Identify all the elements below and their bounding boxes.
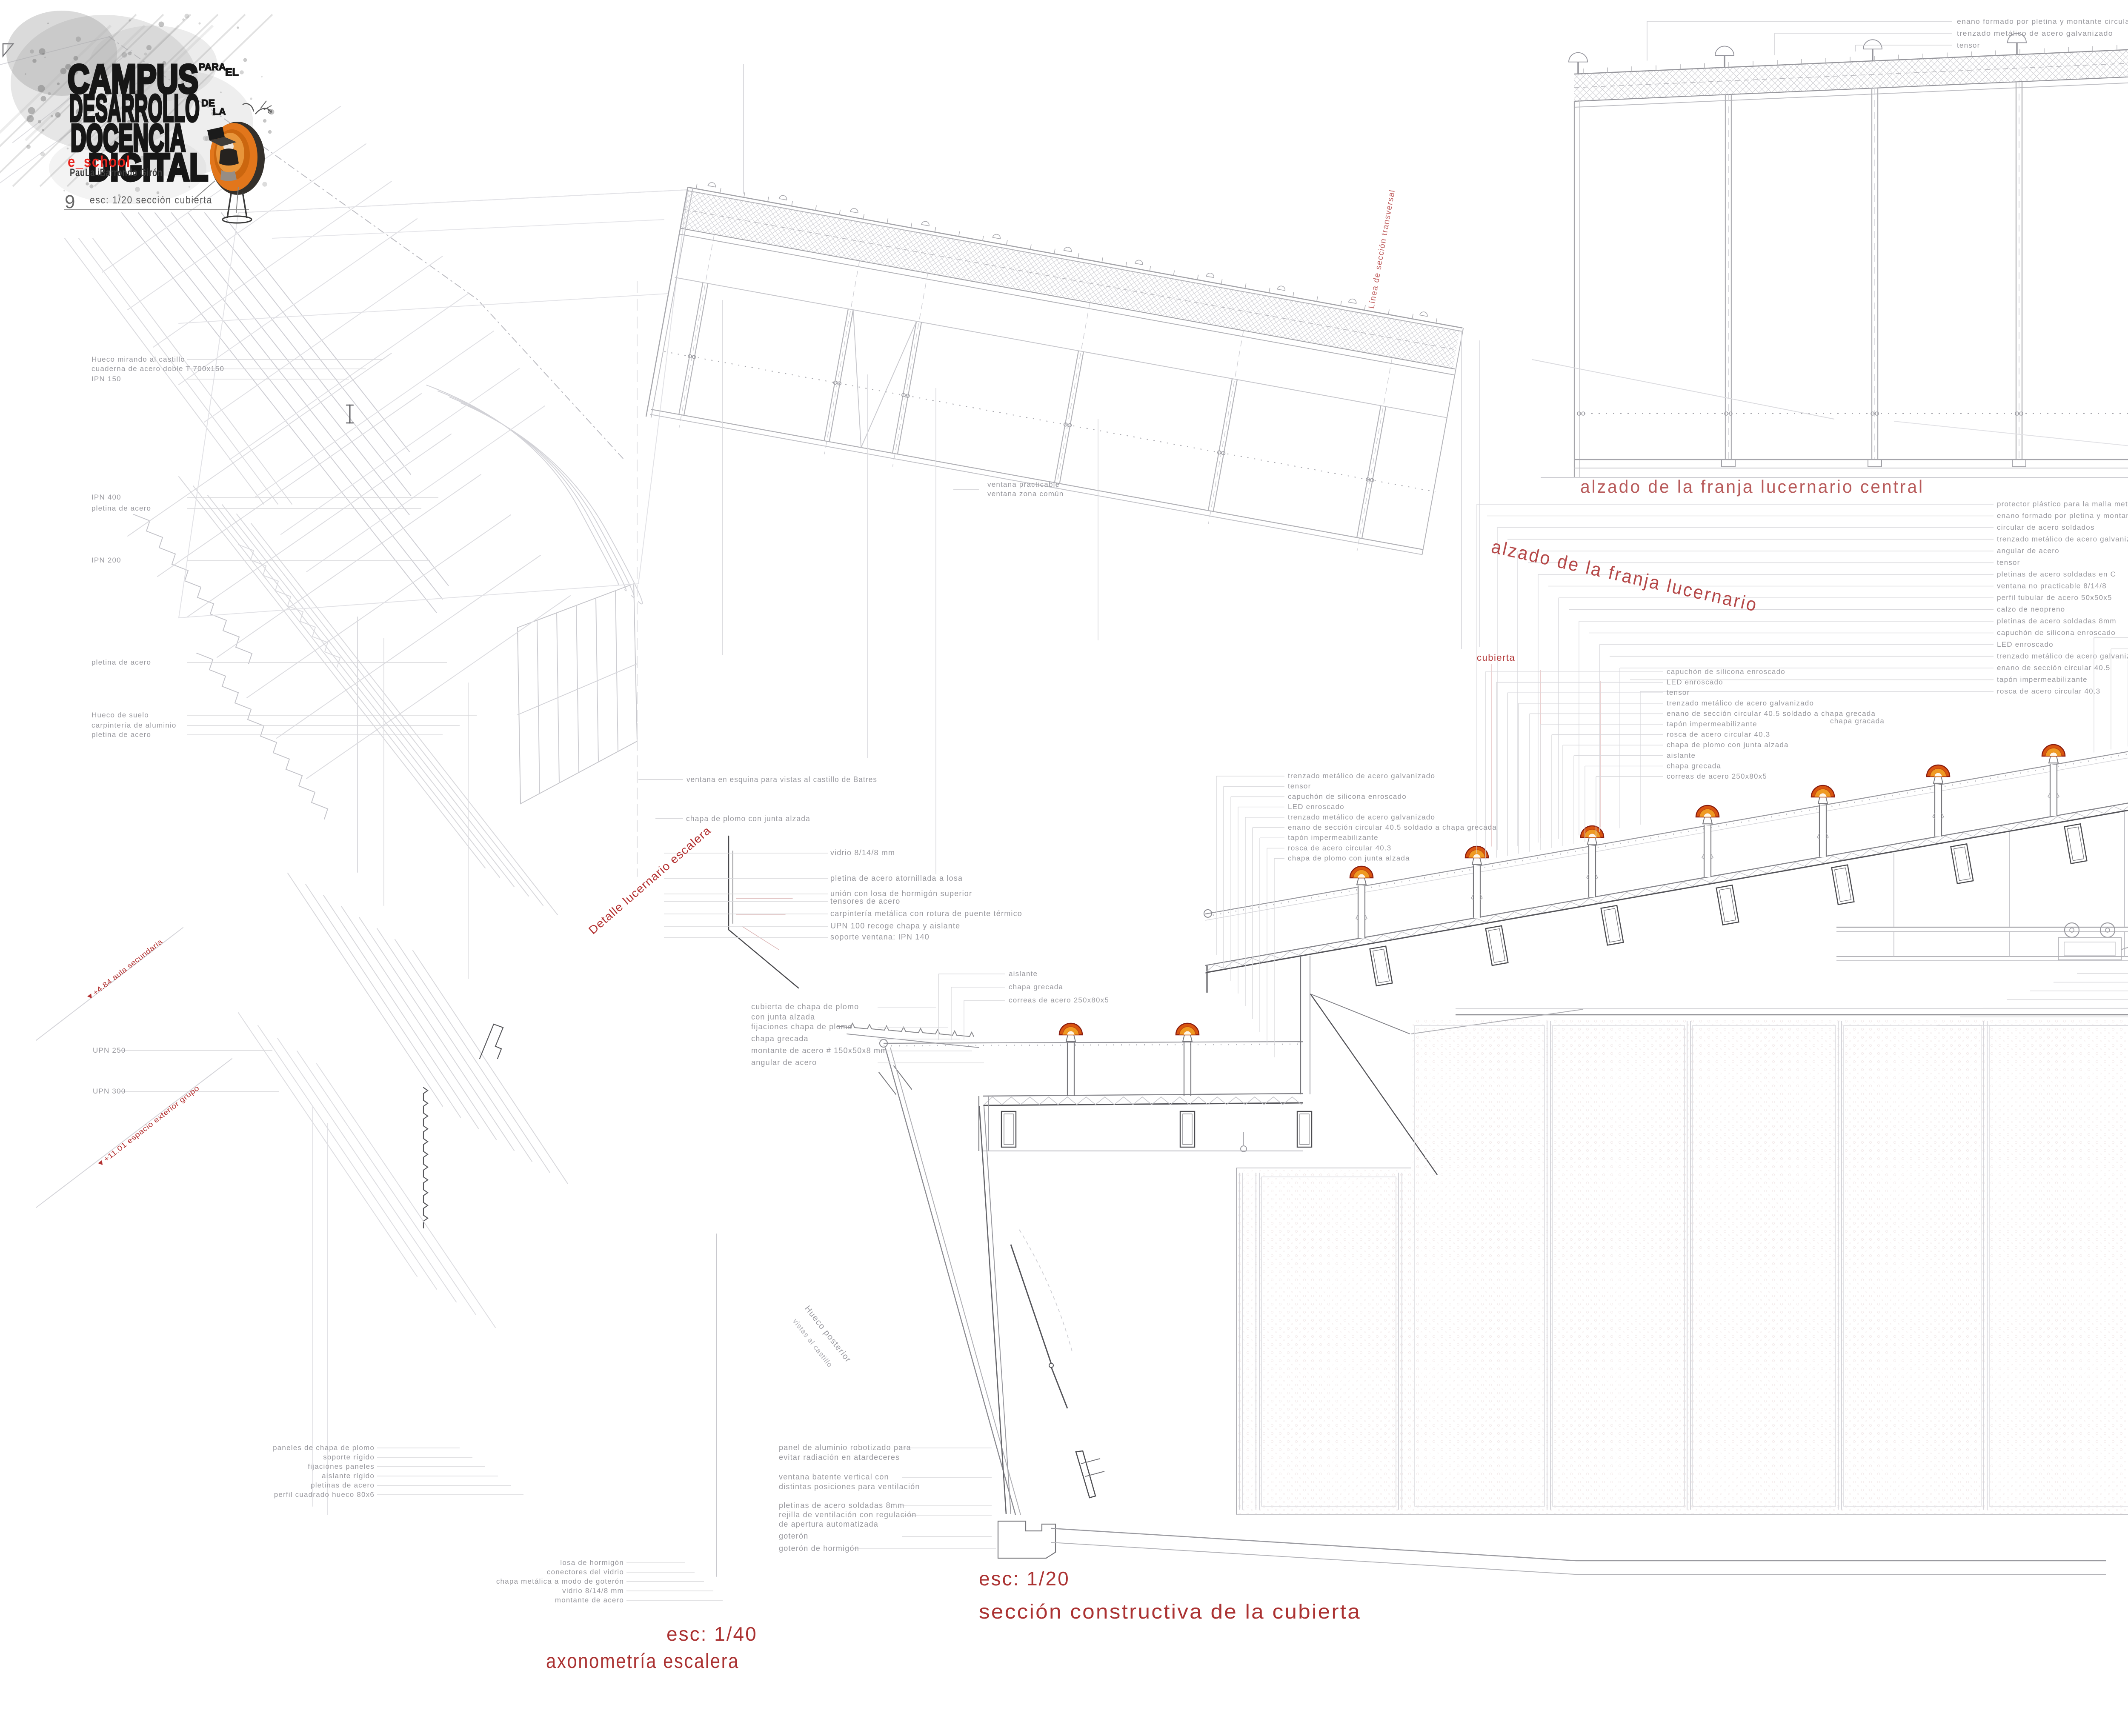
svg-text:chapa de plomo con junta alzad: chapa de plomo con junta alzada xyxy=(686,814,810,823)
svg-text:UPN 250: UPN 250 xyxy=(93,1046,126,1054)
svg-text:PauLa iBarrondo Girón: PauLa iBarrondo Girón xyxy=(70,167,163,179)
svg-text:tensor: tensor xyxy=(1667,688,1690,697)
svg-text:angular de acero: angular de acero xyxy=(1997,547,2059,555)
svg-text:UPN 300: UPN 300 xyxy=(93,1087,126,1095)
svg-text:paneles de chapa de plomo: paneles de chapa de plomo xyxy=(273,1444,375,1452)
svg-text:fijaciones chapa de plomo: fijaciones chapa de plomo xyxy=(751,1022,852,1031)
svg-text:soporte ventana: IPN 140: soporte ventana: IPN 140 xyxy=(830,933,930,941)
svg-text:rosca de acero circular 40.3: rosca de acero circular 40.3 xyxy=(1288,844,1391,852)
svg-text:IPN 200: IPN 200 xyxy=(92,556,121,564)
svg-text:pletina de acero atornillada a: pletina de acero atornillada a losa xyxy=(830,874,963,882)
svg-text:circular de acero soldados: circular de acero soldados xyxy=(1997,523,2095,531)
svg-text:rosca de acero circular 40.3: rosca de acero circular 40.3 xyxy=(1667,731,1770,739)
svg-text:correas de acero 250x80x5: correas de acero 250x80x5 xyxy=(1667,772,1767,780)
svg-text:capuchón de silicona enroscado: capuchón de silicona enroscado xyxy=(1667,668,1785,676)
svg-text:cubierta de chapa de plomo: cubierta de chapa de plomo xyxy=(751,1002,859,1011)
svg-text:esc: 1/20 sección cubierta: esc: 1/20 sección cubierta xyxy=(90,194,212,206)
svg-text:aislante rígido: aislante rígido xyxy=(322,1472,375,1480)
svg-text:chapa gracada: chapa gracada xyxy=(1830,717,1885,725)
svg-text:tensor: tensor xyxy=(1288,782,1311,790)
svg-text:chapa grecada: chapa grecada xyxy=(1667,762,1721,770)
svg-text:goterón: goterón xyxy=(779,1532,808,1540)
svg-text:IPN 150: IPN 150 xyxy=(92,375,121,383)
svg-text:enano formado por pletina y mo: enano formado por pletina y montante cir… xyxy=(1957,17,2128,26)
svg-text:capuchón de silicona enroscado: capuchón de silicona enroscado xyxy=(1288,792,1407,800)
svg-text:trenzado metálico de acero gal: trenzado metálico de acero galvanizado xyxy=(1288,813,1435,821)
svg-text:capuchón de silicona enroscado: capuchón de silicona enroscado xyxy=(1997,629,2116,637)
svg-text:rosca de acero circular 40.3: rosca de acero circular 40.3 xyxy=(1997,687,2100,695)
svg-text:ventana en esquina para vistas: ventana en esquina para vistas al castil… xyxy=(686,775,877,784)
svg-text:trenzado metálico de acero gal: trenzado metálico de acero galvanizado xyxy=(1997,652,2128,660)
svg-text:rejilla de ventilación con reg: rejilla de ventilación con regulación xyxy=(779,1510,917,1519)
svg-text:pletinas de acero soldadas en: pletinas de acero soldadas en C xyxy=(1997,570,2116,578)
svg-text:tapón impermeabilizante: tapón impermeabilizante xyxy=(1997,676,2088,684)
svg-text:tensores de acero: tensores de acero xyxy=(830,897,901,905)
svg-text:LED enroscado: LED enroscado xyxy=(1997,640,2054,648)
svg-text:con junta alzada: con junta alzada xyxy=(751,1013,815,1021)
svg-text:esc: 1/20: esc: 1/20 xyxy=(979,1568,1070,1590)
svg-text:ventana no practicable 8/14/8: ventana no practicable 8/14/8 xyxy=(1997,582,2107,590)
svg-text:axonometría escalera: axonometría escalera xyxy=(546,1650,739,1673)
svg-text:LA: LA xyxy=(213,106,226,117)
svg-text:vidrio 8/14/8 mm: vidrio 8/14/8 mm xyxy=(562,1587,624,1595)
svg-text:vidrio 8/14/8 mm: vidrio 8/14/8 mm xyxy=(830,848,895,857)
svg-text:perfil tubular de acero 50x50x: perfil tubular de acero 50x50x5 xyxy=(1997,594,2112,602)
svg-text:evitar radiación en atardecere: evitar radiación en atardeceres xyxy=(779,1453,900,1462)
svg-text:ventana batente vertical con: ventana batente vertical con xyxy=(779,1473,889,1481)
svg-text:trenzado metálico de acero gal: trenzado metálico de acero galvanizado xyxy=(1667,699,1814,707)
svg-text:tensor: tensor xyxy=(1997,559,2020,567)
svg-text:ventana practicable: ventana practicable xyxy=(987,480,1060,488)
svg-text:Hueco mirando al castillo: Hueco mirando al castillo xyxy=(92,355,185,363)
svg-text:pletinas de acero: pletinas de acero xyxy=(311,1481,375,1489)
svg-text:goterón de hormigón: goterón de hormigón xyxy=(779,1544,859,1553)
svg-text:trenzado metálico de acero gal: trenzado metálico de acero galvanizado xyxy=(1957,29,2113,37)
svg-text:pletina de acero: pletina de acero xyxy=(92,504,151,512)
svg-text:calzo de neopreno: calzo de neopreno xyxy=(1997,605,2065,614)
svg-text:tensor: tensor xyxy=(1957,41,1980,49)
svg-text:conectores del vidrio: conectores del vidrio xyxy=(547,1568,624,1576)
svg-text:chapa de plomo con junta alzad: chapa de plomo con junta alzada xyxy=(1288,854,1410,862)
svg-text:unión con losa de hormigón sup: unión con losa de hormigón superior xyxy=(830,889,972,898)
svg-text:montante de acero # 150x50x8: montante de acero # 150x50x8 mm xyxy=(751,1046,887,1055)
svg-text:esc: 1/40: esc: 1/40 xyxy=(666,1623,758,1645)
svg-text:soporte rígido: soporte rígido xyxy=(323,1453,375,1461)
svg-text:IPN 400: IPN 400 xyxy=(92,493,121,501)
svg-text:losa de hormigón: losa de hormigón xyxy=(560,1559,624,1567)
svg-text:ventana zona común: ventana zona común xyxy=(987,490,1064,498)
svg-text:enano de sección circular 40.5: enano de sección circular 40.5 xyxy=(1997,664,2111,672)
svg-text:angular de acero: angular de acero xyxy=(751,1058,817,1067)
svg-text:fijaciones paneles: fijaciones paneles xyxy=(308,1462,375,1470)
svg-text:pletina de acero: pletina de acero xyxy=(92,658,151,666)
svg-text:pletinas de acero soldadas 8mm: pletinas de acero soldadas 8mm xyxy=(779,1501,904,1510)
svg-text:montante de acero: montante de acero xyxy=(555,1596,624,1604)
svg-text:chapa grecada: chapa grecada xyxy=(751,1034,809,1043)
svg-text:perfil cuadrado hueco 80x6: perfil cuadrado hueco 80x6 xyxy=(274,1490,375,1499)
svg-text:aislante: aislante xyxy=(1667,751,1696,759)
svg-text:de apertura automatizada: de apertura automatizada xyxy=(779,1520,878,1528)
svg-text:trenzado metálico de acero gal: trenzado metálico de acero galvanizado xyxy=(1288,772,1435,780)
svg-text:aislante: aislante xyxy=(1009,970,1038,978)
svg-text:LED enroscado: LED enroscado xyxy=(1667,678,1723,686)
svg-text:LED enroscado: LED enroscado xyxy=(1288,803,1344,811)
svg-text:EL: EL xyxy=(225,66,239,78)
svg-text:panel de aluminio robotizado p: panel de aluminio robotizado para xyxy=(779,1443,911,1452)
svg-text:sección constructiva de la cub: sección constructiva de la cubierta xyxy=(979,1601,1361,1623)
svg-text:pletina de acero: pletina de acero xyxy=(92,731,151,739)
svg-text:cuaderna de acero doble T 700x: cuaderna de acero doble T 700x150 xyxy=(92,365,224,373)
svg-text:alzado de la franja lucernario: alzado de la franja lucernario central xyxy=(1580,477,1924,497)
svg-text:chapa metálica a modo de goter: chapa metálica a modo de goterón xyxy=(496,1577,624,1585)
svg-text:correas de acero 250x80x5: correas de acero 250x80x5 xyxy=(1009,996,1109,1004)
svg-text:tapón impermeabilizante: tapón impermeabilizante xyxy=(1288,834,1379,842)
svg-text:distintas posiciones para vent: distintas posiciones para ventilación xyxy=(779,1482,920,1491)
svg-text:trenzado metálico de acero gal: trenzado metálico de acero galvanizado xyxy=(1997,535,2128,543)
svg-text:enano de sección circular 40.5: enano de sección circular 40.5 soldado a… xyxy=(1288,823,1497,831)
svg-text:enano formado por pletina y mo: enano formado por pletina y montante xyxy=(1997,512,2128,520)
svg-text:carpintería de aluminio: carpintería de aluminio xyxy=(92,721,177,729)
svg-text:enano de sección circular 40.5: enano de sección circular 40.5 soldado a… xyxy=(1667,709,1876,717)
svg-text:tapón impermeabilizante: tapón impermeabilizante xyxy=(1667,720,1757,728)
svg-text:cubierta: cubierta xyxy=(1477,652,1515,663)
svg-text:PARA: PARA xyxy=(199,61,226,72)
svg-text:chapa grecada: chapa grecada xyxy=(1009,983,1063,991)
svg-text:pletinas de acero soldadas 8mm: pletinas de acero soldadas 8mm xyxy=(1997,617,2117,625)
svg-text:protector plástico para la mal: protector plástico para la malla metálic… xyxy=(1997,500,2128,508)
svg-text:chapa de plomo con junta alzad: chapa de plomo con junta alzada xyxy=(1667,741,1789,749)
svg-text:UPN 100 recoge chapa y aislant: UPN 100 recoge chapa y aislante xyxy=(830,922,960,930)
svg-text:Hueco de suelo: Hueco de suelo xyxy=(92,711,149,719)
svg-text:carpintería metálica con rotur: carpintería metálica con rotura de puent… xyxy=(830,909,1022,918)
